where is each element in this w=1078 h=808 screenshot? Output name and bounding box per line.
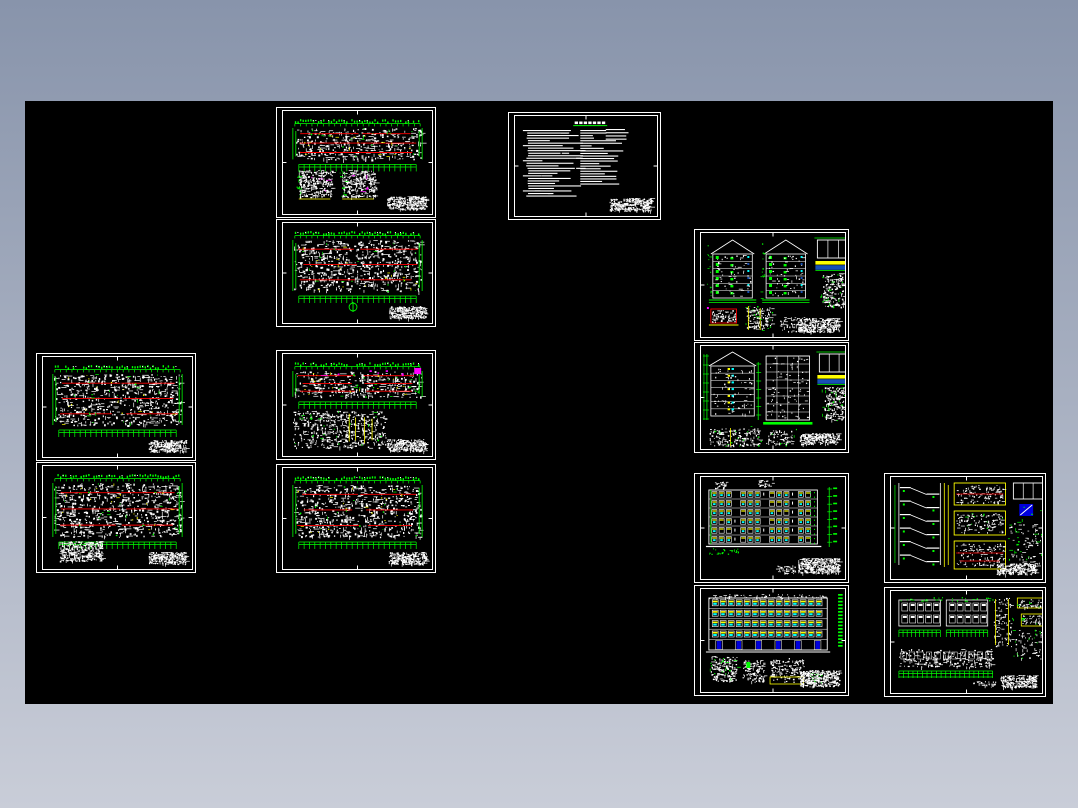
sheet-design-notes [508, 112, 661, 220]
sheet-linework-roof-plan [283, 354, 432, 456]
sheet-inner-frame [890, 590, 1043, 694]
sheet-linework-side-gable-elevations [701, 233, 845, 337]
sheet-linework-design-notes [515, 116, 657, 216]
sheet-linework-floor-plan-mid [283, 468, 432, 569]
sheet-inner-frame [282, 467, 433, 570]
sheet-inner-frame [282, 222, 433, 324]
sheet-partial-elev-details [884, 587, 1046, 697]
sheet-linework-front-elevation [701, 477, 845, 579]
sheet-front-elevation [694, 473, 849, 583]
sheet-linework-building-section [701, 346, 845, 449]
sheet-linework-rear-elevation [701, 589, 845, 692]
sheet-inner-frame [700, 345, 846, 450]
sheet-inner-frame [282, 353, 433, 457]
sheet-floor-plan-west-b [36, 462, 196, 573]
sheet-linework-standard-floor-plan [283, 223, 432, 323]
sheet-inner-frame [282, 110, 433, 215]
sheet-inner-frame [42, 465, 193, 570]
sheet-linework-first-floor-plan [283, 111, 432, 214]
sheet-inner-frame [700, 476, 846, 580]
sheet-side-gable-elevations [694, 229, 849, 341]
sheet-roof-plan [276, 350, 436, 460]
cad-drawing-canvas[interactable] [25, 101, 1053, 704]
sheet-linework-partial-elev-details [891, 591, 1042, 693]
sheet-linework-floor-plan-west-a [43, 357, 192, 457]
sheet-floor-plan-west-a [36, 353, 196, 461]
sheet-inner-frame [514, 115, 658, 217]
sheet-stair-section-details [884, 473, 1046, 583]
desktop-background [0, 0, 1078, 808]
sheet-inner-frame [890, 476, 1043, 580]
sheet-inner-frame [700, 232, 846, 338]
sheet-first-floor-plan [276, 107, 436, 218]
sheet-inner-frame [42, 356, 193, 458]
sheet-floor-plan-mid [276, 464, 436, 573]
sheet-rear-elevation [694, 585, 849, 696]
sheet-linework-floor-plan-west-b [43, 466, 192, 569]
sheet-building-section [694, 342, 849, 453]
sheet-standard-floor-plan [276, 219, 436, 327]
sheet-linework-stair-section-details [891, 477, 1042, 579]
sheet-inner-frame [700, 588, 846, 693]
